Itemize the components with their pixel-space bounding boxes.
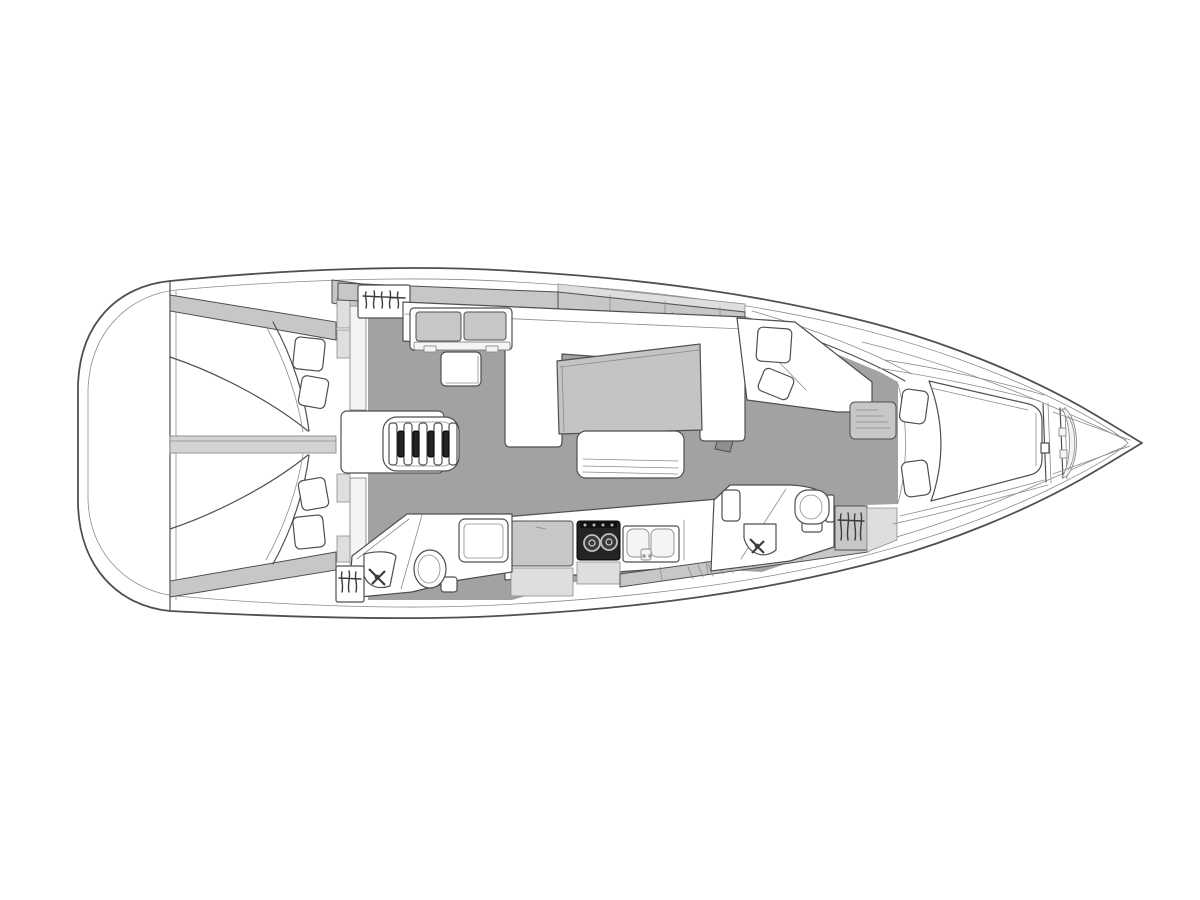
cabin-divider [170, 436, 336, 453]
step-gap [398, 431, 404, 457]
step-gap [428, 431, 434, 457]
dresser-steps [850, 402, 896, 439]
faucet-base [375, 575, 380, 580]
sink-basin [651, 529, 674, 557]
seat-cushion [416, 312, 461, 341]
seat-tab [486, 346, 498, 352]
step-tread [404, 423, 412, 465]
pillow [298, 375, 330, 409]
stove-burner [584, 535, 600, 551]
locker-strip-upper [350, 306, 366, 410]
stove-burner [601, 534, 617, 550]
locker-block [337, 474, 350, 502]
locker-fitting [1059, 428, 1066, 436]
bench-seat [577, 431, 684, 478]
salon-bench [577, 431, 684, 478]
step-gap [413, 431, 419, 457]
locker-band-below-fridge [511, 568, 573, 596]
stove-knob [593, 524, 596, 527]
faucet-base [755, 544, 760, 549]
wardrobe-box [336, 566, 364, 602]
locker-fitting [1060, 450, 1067, 458]
side-table-top [441, 352, 481, 386]
yacht-interior-layout-diagram [0, 0, 1200, 900]
toilet-bowl [414, 550, 446, 588]
faucet-tap [642, 554, 646, 558]
step-tread [419, 423, 427, 465]
shower-pan [459, 519, 508, 562]
step-tread [434, 423, 442, 465]
locker-block [337, 298, 350, 328]
faucet-tap [648, 554, 652, 558]
divider-bulkhead [170, 436, 336, 453]
pillow [298, 477, 330, 511]
pillow [292, 515, 325, 550]
step-gap [443, 431, 449, 457]
seat-cushion [464, 312, 506, 340]
stove-knob [602, 524, 605, 527]
side-table [441, 352, 481, 386]
wardrobe-top [358, 285, 410, 318]
yacht-layout-canvas [0, 0, 1200, 900]
dresser-top [850, 402, 896, 439]
pillow [901, 459, 932, 497]
wardrobe-aft-lower [336, 566, 364, 602]
stove-knob [611, 524, 614, 527]
stove-knob [584, 524, 587, 527]
pillow [292, 337, 325, 372]
companionway-steps [341, 411, 459, 473]
corner-seat [410, 308, 512, 352]
pillow [899, 388, 929, 424]
seat-tab [424, 346, 436, 352]
wardrobe-box [835, 506, 867, 550]
locker-block [337, 536, 350, 562]
step-tread [449, 423, 457, 465]
chaise-cushion [756, 327, 792, 363]
locker-band-below-stove [577, 562, 620, 584]
shower-seat [722, 490, 740, 521]
locker-block [337, 330, 350, 358]
bulkhead-fitting [1041, 443, 1049, 453]
fridge-counter [511, 521, 573, 566]
step-tread [389, 423, 397, 465]
